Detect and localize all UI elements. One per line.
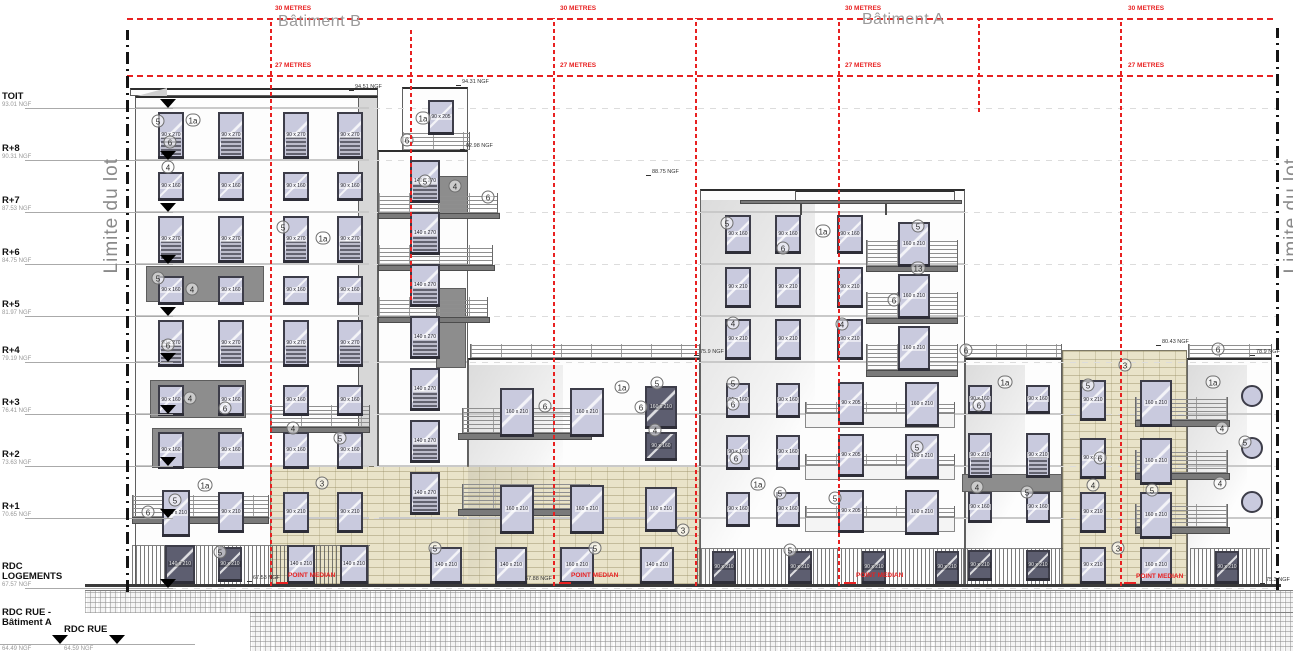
window-size-label: 90 x 210 — [969, 562, 990, 568]
window: 90 x 210 — [968, 550, 992, 580]
window-sill — [158, 302, 184, 305]
window-size-label: 90 x 210 — [969, 452, 990, 458]
floor-level-label: R+4 — [2, 346, 94, 356]
window-size-label: 140 x 210 — [289, 561, 313, 567]
floor-level-label: R+3 — [2, 398, 94, 408]
window-size-label: 90 x 160 — [285, 447, 306, 453]
window-size-label: 90 x 210 — [839, 336, 860, 342]
height-limit-label: 30 METRES — [560, 5, 596, 12]
level-leader-line — [25, 264, 173, 265]
window-size-label: 160 x 210 — [1144, 458, 1168, 464]
window: 140 x 270 — [410, 316, 440, 358]
level-leader-line — [25, 108, 173, 109]
window-sill — [162, 534, 190, 537]
window-size-label: 90 x 160 — [339, 287, 360, 293]
level-marker — [160, 151, 176, 160]
window-sill — [500, 531, 534, 534]
window-size-label: 90 x 210 — [219, 561, 240, 567]
window-size-label: 140 x 270 — [413, 438, 437, 444]
window-size-label: 90 x 160 — [220, 183, 241, 189]
annotation-bubble: 4 — [1214, 477, 1227, 490]
level-leader-line — [25, 362, 173, 363]
point-median-tick — [1124, 582, 1136, 584]
annotation-bubble: 4 — [184, 392, 197, 405]
window-size-label: 90 x 205 — [430, 114, 451, 120]
plot-limit-label: Limite du lot — [1281, 158, 1293, 273]
window-size-label: 90 x 205 — [840, 508, 861, 514]
window-size-label: 90 x 160 — [220, 447, 241, 453]
window: 90 x 210 — [283, 492, 309, 532]
window-sill — [905, 424, 939, 427]
window-size-label: 140 x 210 — [499, 562, 523, 568]
point-median-label: POINT MEDIAN — [288, 572, 335, 579]
height-limit-line — [127, 75, 1277, 77]
window-size-label: 160 x 210 — [902, 293, 926, 299]
annotation-bubble: 5 — [721, 217, 734, 230]
street-leader-line — [0, 644, 195, 645]
median-line — [1120, 18, 1122, 586]
street-level-marker — [52, 635, 68, 644]
window: 140 x 270 — [410, 368, 440, 410]
window-sill — [283, 198, 309, 201]
window: 90 x 160 — [837, 215, 863, 253]
window: 90 x 210 — [337, 492, 363, 532]
window: 90 x 160 — [776, 383, 800, 417]
ground-hatch — [85, 590, 1293, 613]
window-sill — [968, 578, 992, 581]
window: 90 x 205 — [838, 490, 864, 532]
window-size-label: 90 x 205 — [840, 452, 861, 458]
window-sill — [1140, 424, 1172, 427]
level-dashed-line — [170, 588, 1277, 589]
floor-level-label: TOIT — [2, 92, 94, 102]
window-size-label: 160 x 210 — [565, 562, 589, 568]
window-sill — [1026, 475, 1050, 478]
annotation-bubble: 4 — [971, 481, 984, 494]
annotation-bubble: 6 — [162, 339, 175, 352]
annotation-bubble: 3 — [316, 477, 329, 490]
floor-level-label: R+8 — [2, 144, 94, 154]
window: 140 x 210 — [495, 547, 527, 583]
window: 140 x 270 — [410, 264, 440, 306]
window-sill — [1140, 536, 1172, 539]
annotation-bubble: 6 — [164, 136, 177, 149]
window: 160 x 210 — [570, 388, 604, 436]
height-limit-label: 27 METRES — [560, 62, 596, 69]
window-sill — [645, 529, 677, 532]
window-sill — [158, 198, 184, 201]
window-sill — [775, 305, 801, 308]
window: 160 x 210 — [905, 382, 939, 426]
window-sill — [218, 364, 244, 367]
window-sill — [1026, 411, 1050, 414]
window-size-label: 160 x 210 — [575, 506, 599, 512]
window-sill — [410, 304, 440, 307]
annotation-bubble: 5 — [774, 487, 787, 500]
window: 90 x 270 — [218, 216, 244, 262]
window-sill — [1026, 520, 1050, 523]
window-sill — [218, 260, 244, 263]
window-size-label: 90 x 160 — [285, 183, 306, 189]
window: 160 x 210 — [645, 487, 677, 531]
window-size-label: 90 x 210 — [1216, 564, 1237, 570]
annotation-bubble: 4 — [287, 422, 300, 435]
window-size-label: 90 x 210 — [777, 284, 798, 290]
annotation-bubble: 6 — [219, 402, 232, 415]
level-leader-line — [25, 518, 173, 519]
window-size-label: 160 x 210 — [575, 409, 599, 415]
window-size-label: 140 x 270 — [413, 386, 437, 392]
window-size-label: 90 x 210 — [1082, 562, 1103, 568]
point-median-label: POINT MEDIAN — [856, 572, 903, 579]
window-size-label: 160 x 210 — [1144, 400, 1168, 406]
window: 90 x 160 — [218, 276, 244, 304]
window: 90 x 160 — [283, 276, 309, 304]
annotation-bubble: 6 — [539, 400, 552, 413]
height-limit-label: 30 METRES — [275, 5, 311, 12]
window-sill — [283, 413, 309, 416]
annotation-bubble: 5 — [169, 494, 182, 507]
window-sill — [410, 512, 440, 515]
window: 90 x 270 — [337, 320, 363, 366]
street-level-label: RDC RUE — [64, 625, 156, 635]
window-size-label: 90 x 210 — [1027, 452, 1048, 458]
window-sill — [898, 316, 930, 319]
annotation-bubble: 6 — [960, 344, 973, 357]
window: 90 x 210 — [775, 319, 801, 359]
median-line — [270, 18, 272, 586]
balcony-slab — [866, 370, 958, 377]
window-sill — [776, 524, 800, 527]
annotation-bubble: 4 — [727, 317, 740, 330]
median-line — [695, 18, 697, 586]
window-sill — [726, 467, 750, 470]
annotation-bubble: 4 — [186, 283, 199, 296]
window-sill — [838, 530, 864, 533]
balcony-slab — [885, 204, 887, 215]
level-marker — [160, 509, 176, 518]
ngf-tag: 92.98 NGF — [466, 143, 493, 149]
window-size-label: 90 x 160 — [777, 449, 798, 455]
window-size-label: 90 x 160 — [777, 397, 798, 403]
window-sill — [726, 415, 750, 418]
window-sill — [218, 579, 242, 582]
window-sill — [570, 531, 604, 534]
annotation-bubble: 5 — [727, 377, 740, 390]
window: 90 x 160 — [283, 385, 309, 415]
floor-slab-line — [379, 465, 467, 467]
window: 90 x 160 — [158, 172, 184, 200]
level-marker — [160, 203, 176, 212]
window: 90 x 210 — [1080, 547, 1106, 583]
annotation-bubble: 6 — [777, 242, 790, 255]
median-line — [410, 28, 412, 300]
annotation-bubble: 1a — [615, 381, 630, 394]
window-sill — [410, 408, 440, 411]
annotation-bubble: 6 — [888, 294, 901, 307]
window-size-label: 90 x 270 — [220, 132, 241, 138]
ngf-tag: 94.51 NGF — [355, 84, 382, 90]
floor-level-label: R+5 — [2, 300, 94, 310]
window: 90 x 160 — [283, 432, 309, 468]
window-sill — [837, 305, 863, 308]
window-size-label: 140 x 270 — [413, 230, 437, 236]
window-size-label: 160 x 210 — [902, 241, 926, 247]
window: 160 x 210 — [1140, 492, 1172, 538]
median-line — [978, 18, 980, 112]
window: 140 x 270 — [410, 420, 440, 462]
window-size-label: 90 x 160 — [1027, 396, 1048, 402]
annotation-bubble: 5 — [651, 377, 664, 390]
ngf-tag: 75.9 NGF — [700, 349, 724, 355]
window-size-label: 160 x 210 — [1144, 512, 1168, 518]
window: 90 x 210 — [725, 267, 751, 307]
annotation-bubble: 5 — [334, 432, 347, 445]
annotation-bubble: 5 — [1146, 484, 1159, 497]
point-median-label: POINT MEDIAN — [571, 572, 618, 579]
annotation-bubble: 1a — [416, 112, 431, 125]
window-size-label: 90 x 160 — [339, 447, 360, 453]
window-size-label: 160 x 210 — [1144, 562, 1168, 568]
window-size-label: 90 x 160 — [650, 443, 671, 449]
annotation-bubble: 5 — [419, 175, 432, 188]
ground-fence — [697, 548, 963, 584]
window-sill — [725, 251, 751, 254]
annotation-bubble: 6 — [973, 399, 986, 412]
height-limit-label: 27 METRES — [845, 62, 881, 69]
level-leader-line — [25, 160, 173, 161]
window-size-label: 90 x 160 — [839, 231, 860, 237]
window: 140 x 210 — [640, 547, 674, 583]
window-sill — [410, 200, 440, 203]
window-size-label: 90 x 160 — [969, 504, 990, 510]
plot-limit-line — [1276, 28, 1279, 590]
window: 90 x 205 — [838, 434, 864, 476]
window-size-label: 90 x 210 — [727, 336, 748, 342]
window: 90 x 210 — [1026, 550, 1050, 580]
annotation-bubble: 1a — [1206, 376, 1221, 389]
window-sill — [837, 251, 863, 254]
window: 90 x 270 — [337, 112, 363, 158]
window-size-label: 90 x 270 — [220, 340, 241, 346]
facade-block — [130, 88, 378, 96]
street-level-elevation: 64.49 NGF — [2, 646, 31, 651]
window-size-label: 160 x 210 — [910, 509, 934, 515]
window: 160 x 210 — [570, 485, 604, 533]
level-leader-line — [25, 588, 173, 589]
window-sill — [570, 434, 604, 437]
window-sill — [775, 357, 801, 360]
level-marker — [160, 579, 176, 588]
window-size-label: 90 x 210 — [1082, 397, 1103, 403]
window-size-label: 90 x 210 — [1027, 562, 1048, 568]
window-sill — [218, 156, 244, 159]
annotation-bubble: 4 — [1216, 422, 1229, 435]
level-leader-line — [25, 316, 173, 317]
window: 90 x 210 — [712, 551, 736, 583]
ngf-tag: 67.88 NGF — [525, 576, 552, 582]
annotation-bubble: 6 — [1094, 452, 1107, 465]
window-size-label: 90 x 160 — [285, 397, 306, 403]
window-size-label: 90 x 210 — [777, 336, 798, 342]
window: 160 x 210 — [898, 326, 930, 370]
annotation-bubble: 5 — [152, 272, 165, 285]
window-size-label: 90 x 270 — [285, 340, 306, 346]
window-size-label: 160 x 210 — [910, 401, 934, 407]
window-size-label: 140 x 270 — [413, 282, 437, 288]
annotation-bubble: 5 — [912, 220, 925, 233]
window-size-label: 90 x 160 — [285, 287, 306, 293]
window-size-label: 90 x 210 — [1082, 509, 1103, 515]
annotation-bubble: 6 — [142, 506, 155, 519]
window: 140 x 210 — [165, 545, 195, 583]
window-sill — [158, 364, 184, 367]
annotation-bubble: 3 — [677, 524, 690, 537]
window: 90 x 160 — [283, 172, 309, 200]
window-sill — [726, 524, 750, 527]
window: 140 x 270 — [410, 472, 440, 514]
level-leader-line — [25, 212, 173, 213]
window-size-label: 90 x 270 — [339, 236, 360, 242]
window-sill — [837, 357, 863, 360]
annotation-bubble: 13 — [911, 262, 926, 275]
ngf-tag: 67.53 NGF — [253, 575, 280, 581]
window: 90 x 160 — [337, 385, 363, 415]
window: 90 x 270 — [218, 320, 244, 366]
window: 90 x 160 — [645, 432, 677, 460]
window-sill — [1080, 418, 1106, 421]
annotation-bubble: 1a — [198, 479, 213, 492]
annotation-bubble: 6 — [727, 398, 740, 411]
window: 160 x 210 — [500, 485, 534, 533]
window: 90 x 210 — [837, 267, 863, 307]
window-sill — [218, 530, 244, 533]
building-a-title: Bâtiment A — [862, 11, 944, 29]
ngf-tag: 80.43 NGF — [1162, 339, 1189, 345]
window: 90 x 210 — [218, 492, 244, 532]
window: 90 x 210 — [1215, 551, 1239, 583]
window: 90 x 210 — [1026, 433, 1050, 477]
ngf-tag: 78.9 NGF — [1256, 349, 1280, 355]
window-sill — [500, 434, 534, 437]
annotation-bubble: 6 — [482, 191, 495, 204]
window-sill — [337, 530, 363, 533]
window-sill — [905, 532, 939, 535]
street-level-marker — [109, 635, 125, 644]
window-size-label: 90 x 210 — [936, 564, 957, 570]
window-sill — [218, 302, 244, 305]
annotation-bubble: 6 — [730, 452, 743, 465]
annotation-bubble: 6 — [635, 401, 648, 414]
window: 90 x 160 — [337, 172, 363, 200]
annotation-bubble: 1a — [186, 114, 201, 127]
floor-slab-line — [701, 211, 964, 213]
window: 160 x 210 — [1140, 380, 1172, 426]
window-size-label: 90 x 270 — [160, 236, 181, 242]
window-size-label: 90 x 210 — [863, 564, 884, 570]
window: 90 x 160 — [218, 432, 244, 468]
annotation-bubble: 5 — [277, 221, 290, 234]
median-line — [838, 18, 840, 586]
window-size-label: 90 x 160 — [727, 231, 748, 237]
window-size-label: 160 x 210 — [910, 453, 934, 459]
window-size-label: 90 x 160 — [339, 397, 360, 403]
window-size-label: 90 x 270 — [285, 132, 306, 138]
window: 90 x 205 — [428, 100, 454, 134]
window: 90 x 270 — [283, 112, 309, 158]
window-sill — [968, 475, 992, 478]
window-size-label: 140 x 210 — [342, 561, 366, 567]
annotation-bubble: 5 — [1082, 379, 1095, 392]
window-sill — [838, 422, 864, 425]
window-size-label: 160 x 210 — [505, 409, 529, 415]
balcony-slab — [800, 204, 802, 215]
window-sill — [725, 357, 751, 360]
balcony-railing — [965, 344, 1062, 358]
level-marker — [160, 99, 176, 108]
plot-limit-line — [126, 30, 129, 592]
window-size-label: 90 x 160 — [160, 287, 181, 293]
ngf-tag: 94.31 NGF — [462, 79, 489, 85]
window-sill — [776, 467, 800, 470]
window-size-label: 160 x 210 — [649, 404, 673, 410]
level-leader-line — [25, 414, 173, 415]
window: 90 x 160 — [218, 172, 244, 200]
window-sill — [337, 364, 363, 367]
level-marker — [160, 457, 176, 466]
window: 90 x 160 — [1026, 385, 1050, 413]
window: 90 x 160 — [337, 276, 363, 304]
window-sill — [776, 415, 800, 418]
window-size-label: 90 x 210 — [713, 564, 734, 570]
elevation-drawing: Bâtiment B Bâtiment A 90 x 27090 x 27090… — [0, 0, 1293, 651]
annotation-bubble: 5 — [1021, 486, 1034, 499]
level-marker — [160, 405, 176, 414]
window: 90 x 270 — [218, 112, 244, 158]
window-sill — [337, 413, 363, 416]
window-size-label: 160 x 210 — [902, 345, 926, 351]
window-sill — [218, 198, 244, 201]
window-size-label: 140 x 210 — [168, 561, 192, 567]
window-sill — [283, 530, 309, 533]
floor-slab-line — [469, 465, 699, 467]
window-sill — [283, 302, 309, 305]
window-sill — [1080, 530, 1106, 533]
annotation-bubble: 5 — [589, 542, 602, 555]
annotation-bubble: 1a — [751, 478, 766, 491]
annotation-bubble: 5 — [1239, 436, 1252, 449]
point-median-tick — [276, 582, 288, 584]
floor-level-label: R+7 — [2, 196, 94, 206]
ngf-tag: 88.75 NGF — [652, 169, 679, 175]
annotation-bubble: 4 — [449, 180, 462, 193]
window-size-label: 90 x 160 — [160, 397, 181, 403]
level-marker — [160, 353, 176, 362]
level-marker — [160, 307, 176, 316]
window-sill — [410, 252, 440, 255]
median-line — [553, 18, 555, 586]
window-size-label: 90 x 160 — [160, 447, 181, 453]
window-size-label: 90 x 160 — [339, 183, 360, 189]
window-size-label: 90 x 210 — [839, 284, 860, 290]
window-size-label: 90 x 210 — [285, 509, 306, 515]
window: 90 x 270 — [283, 320, 309, 366]
window-sill — [898, 368, 930, 371]
level-leader-line — [25, 466, 173, 467]
floor-slab-line — [379, 413, 467, 415]
annotation-bubble: 3 — [1112, 542, 1125, 555]
plot-limit-label: Limite du lot — [101, 158, 123, 273]
